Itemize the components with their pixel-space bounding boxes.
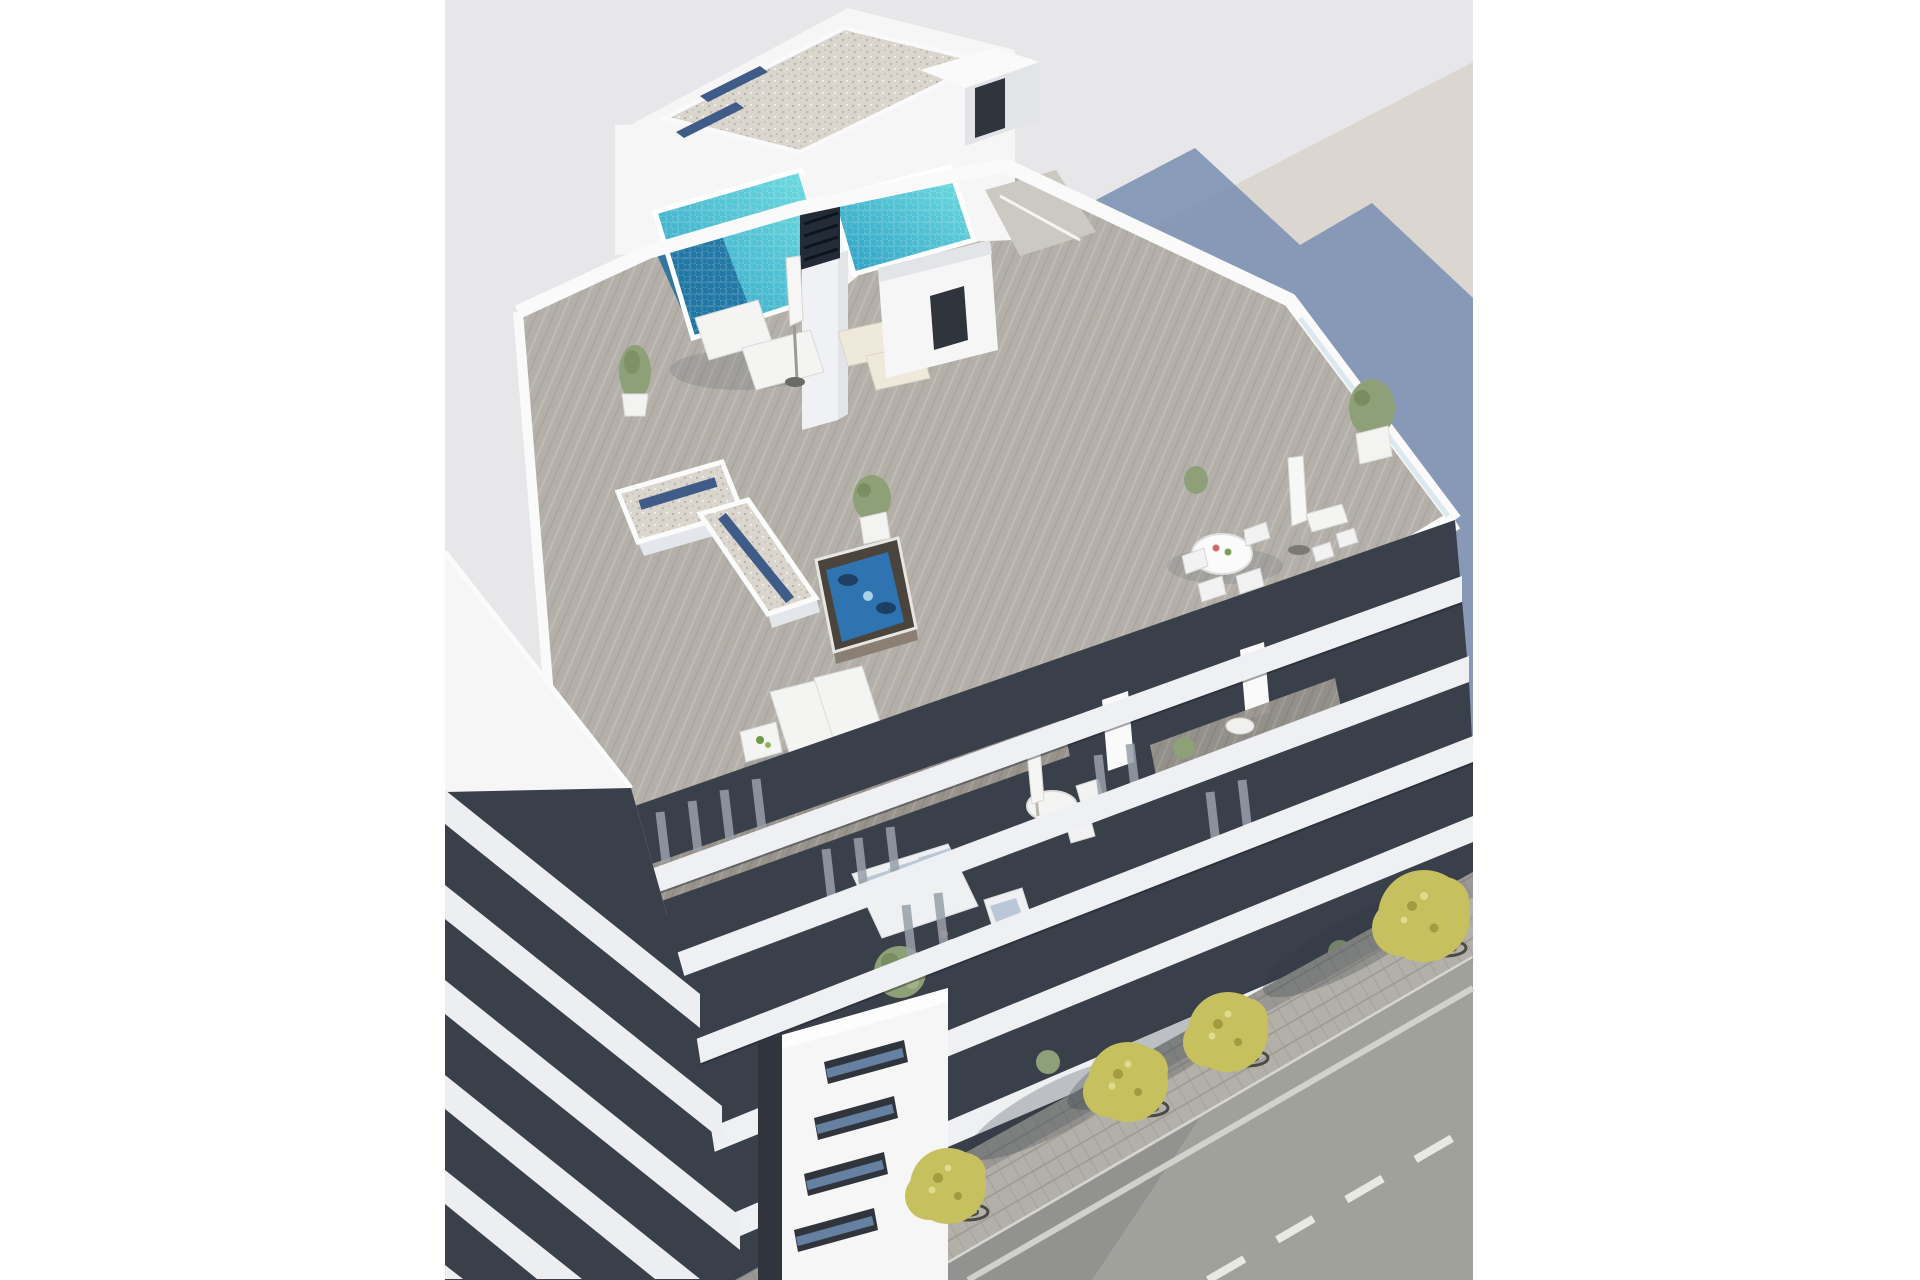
- tower-recess: [758, 1035, 782, 1280]
- potted-cypress: [619, 345, 651, 416]
- render-canvas: [0, 0, 1920, 1280]
- architectural-render: [0, 0, 1920, 1280]
- bulkhead-door: [975, 78, 1005, 138]
- balcony-small-table: [1226, 718, 1254, 734]
